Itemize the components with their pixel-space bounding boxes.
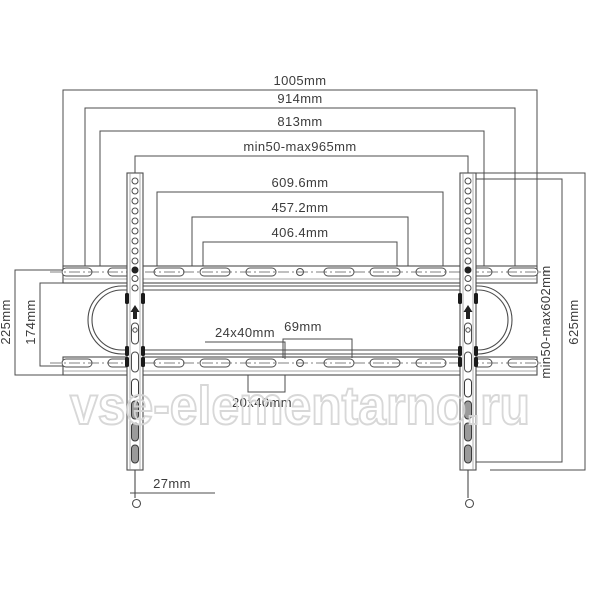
arm-hole	[465, 258, 471, 264]
dim-height-174: 174mm	[23, 283, 88, 366]
dim-vesa-609: 609.6mm	[157, 175, 443, 266]
callout-27: 27mm	[130, 476, 215, 493]
arm-hole	[465, 208, 471, 214]
arm-hole	[465, 188, 471, 194]
arm-hole	[132, 208, 138, 214]
arm-hole	[132, 178, 138, 184]
arm-side-tab	[458, 357, 462, 367]
arm-hole	[132, 248, 138, 254]
arm-hole	[465, 198, 471, 204]
arm-slot-hole	[466, 328, 470, 332]
arm-slot	[465, 445, 472, 463]
left-pull-cord-loop	[133, 500, 141, 508]
right-pull-cord-loop	[466, 500, 474, 508]
arm-hole	[132, 228, 138, 234]
dim-label-813: 813mm	[277, 114, 322, 129]
dim-label-1005: 1005mm	[274, 73, 327, 88]
arm-hole	[132, 198, 138, 204]
arm-side-tab	[125, 293, 129, 304]
mount-diagram-canvas: 1005mm 914mm 813mm min50-max965mm 609.6m…	[0, 0, 600, 600]
dim-label-min50-max965: min50-max965mm	[243, 139, 356, 154]
arm-slot	[132, 323, 139, 344]
arm-hole	[132, 188, 138, 194]
arm-hole	[132, 276, 138, 282]
dim-813: 813mm	[100, 114, 484, 267]
arm-side-tab	[125, 346, 129, 356]
callout-label-24x40: 24x40mm	[215, 325, 275, 340]
dim-label-min50-max602: min50-max602mm	[538, 265, 553, 378]
arm-side-tab	[458, 293, 462, 304]
arm-slot	[132, 445, 139, 463]
arm-hole	[132, 218, 138, 224]
arm-slot-hole	[133, 328, 137, 332]
arm-side-tab	[458, 346, 462, 356]
arm-hole	[132, 285, 138, 291]
callout-label-69: 69mm	[284, 319, 322, 334]
arm-side-tab	[141, 357, 145, 367]
dim-label-225: 225mm	[0, 299, 13, 344]
arm-slot	[465, 323, 472, 344]
arm-hole	[465, 276, 471, 282]
arm-side-tab	[474, 346, 478, 356]
callout-69: 69mm	[283, 319, 352, 358]
arm-side-tab	[474, 293, 478, 304]
dim-label-609: 609.6mm	[272, 175, 329, 190]
arm-hole	[132, 238, 138, 244]
arm-hole	[465, 238, 471, 244]
arm-hole	[465, 178, 471, 184]
dim-label-174: 174mm	[23, 299, 38, 344]
dim-label-457: 457.2mm	[272, 200, 329, 215]
arm-hole-filled	[132, 267, 138, 273]
arm-side-tab	[141, 346, 145, 356]
arm-hole	[465, 218, 471, 224]
arm-hole	[465, 248, 471, 254]
arm-hole	[465, 285, 471, 291]
arm-slot	[465, 352, 472, 372]
dim-stud-range: min50-max965mm	[135, 139, 468, 177]
arm-hole-filled	[465, 267, 471, 273]
watermark-text: vse-elementarno.ru	[70, 376, 530, 436]
dim-label-914: 914mm	[277, 91, 322, 106]
right-vesa-arm	[458, 173, 478, 508]
arm-side-tab	[125, 357, 129, 367]
wall-mount-dimension-drawing: 1005mm 914mm 813mm min50-max965mm 609.6m…	[0, 0, 600, 600]
arm-side-tab	[474, 357, 478, 367]
left-vesa-arm	[125, 173, 145, 508]
callout-label-27: 27mm	[153, 476, 191, 491]
dim-label-625: 625mm	[566, 299, 581, 344]
arm-hole	[132, 258, 138, 264]
dim-vesa-406: 406.4mm	[203, 225, 397, 266]
arm-hole	[465, 228, 471, 234]
dim-label-406: 406.4mm	[272, 225, 329, 240]
arm-side-tab	[141, 293, 145, 304]
arm-slot	[132, 352, 139, 372]
